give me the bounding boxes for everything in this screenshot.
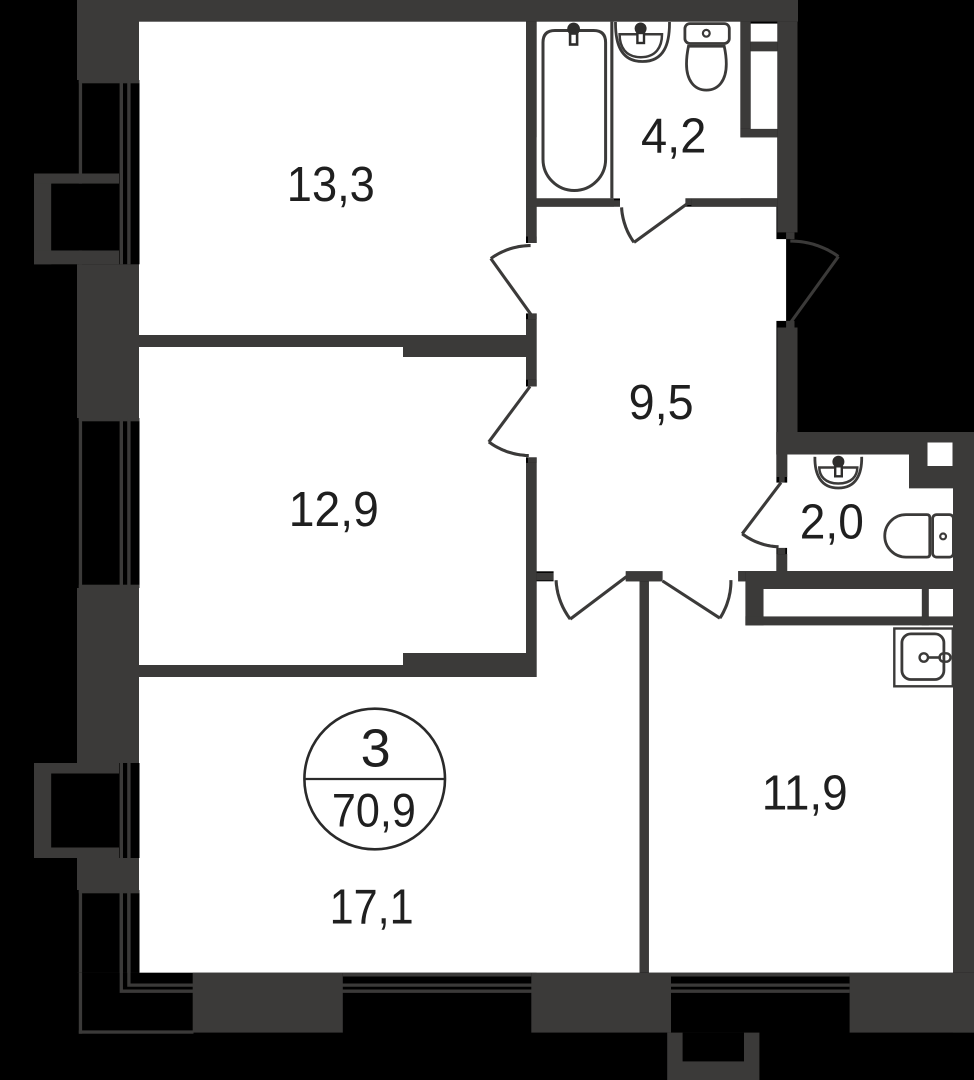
svg-text:70,9: 70,9 [332, 784, 416, 837]
svg-text:9,5: 9,5 [629, 376, 694, 430]
svg-text:4,2: 4,2 [641, 109, 706, 163]
svg-text:11,9: 11,9 [762, 767, 848, 821]
svg-text:3: 3 [361, 718, 391, 778]
svg-text:12,9: 12,9 [289, 483, 379, 537]
svg-text:13,3: 13,3 [287, 158, 375, 212]
svg-text:17,1: 17,1 [330, 881, 414, 935]
svg-text:2,0: 2,0 [800, 496, 864, 550]
